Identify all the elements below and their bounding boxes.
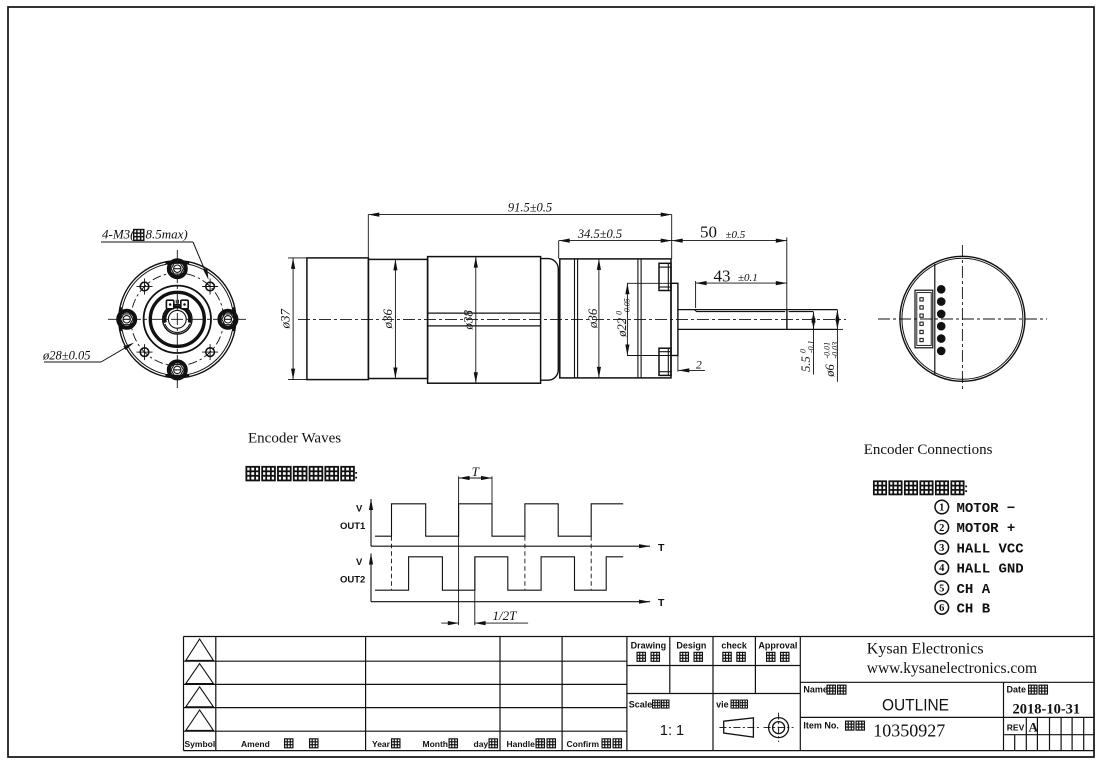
svg-text:ø6: ø6 <box>823 364 837 378</box>
svg-text:HALL GND: HALL GND <box>957 562 1024 578</box>
svg-text::: : <box>354 467 358 482</box>
svg-text:T: T <box>472 464 480 479</box>
svg-text:34.5±0.5: 34.5±0.5 <box>577 227 622 241</box>
svg-text:2: 2 <box>939 523 944 534</box>
svg-text:6: 6 <box>940 349 943 355</box>
svg-text:A: A <box>1029 720 1039 735</box>
svg-text:Month: Month <box>423 739 449 749</box>
svg-text:Date: Date <box>1007 685 1027 695</box>
svg-text:ø36: ø36 <box>585 308 600 329</box>
svg-text:10350927: 10350927 <box>873 721 945 741</box>
svg-text:Encoder Waves: Encoder Waves <box>248 431 341 447</box>
svg-text:T: T <box>658 597 665 609</box>
svg-text:HALL VCC: HALL VCC <box>957 541 1025 557</box>
svg-text:OUTLINE: OUTLINE <box>882 696 949 715</box>
svg-text:-0.05: -0.05 <box>623 298 632 315</box>
svg-text:Symbol: Symbol <box>185 739 216 749</box>
svg-text:1: 1: 1: 1 <box>660 723 684 739</box>
svg-text:Approval: Approval <box>758 641 797 651</box>
svg-text:2018-10-31: 2018-10-31 <box>1013 702 1081 718</box>
svg-text:REV: REV <box>1007 723 1025 733</box>
svg-text:5: 5 <box>939 583 944 594</box>
svg-text:vie: vie <box>716 700 729 710</box>
svg-text:Kysan Electronics: Kysan Electronics <box>867 641 984 658</box>
svg-text:Handle: Handle <box>507 739 536 749</box>
svg-text:MOTOR −: MOTOR − <box>957 501 1016 517</box>
svg-text:ø22: ø22 <box>615 318 629 338</box>
svg-text:day: day <box>474 739 489 749</box>
svg-text:OUT2: OUT2 <box>340 575 365 586</box>
svg-text:Amend: Amend <box>241 739 270 749</box>
svg-text:3: 3 <box>940 312 943 318</box>
svg-text:91.5±0.5: 91.5±0.5 <box>508 201 552 215</box>
svg-text:6: 6 <box>939 603 944 614</box>
svg-text:Name: Name <box>803 685 828 695</box>
svg-text:T: T <box>658 542 665 554</box>
svg-text:CH A: CH A <box>957 582 991 598</box>
svg-text:V: V <box>356 557 363 568</box>
svg-text:43: 43 <box>714 267 731 286</box>
svg-text:Encoder Connections: Encoder Connections <box>864 442 993 458</box>
svg-text:±0.5: ±0.5 <box>726 229 746 241</box>
svg-text:Scale: Scale <box>629 700 653 710</box>
svg-text:2: 2 <box>696 360 702 372</box>
svg-text:Drawing: Drawing <box>631 641 667 651</box>
svg-text:Year: Year <box>372 739 391 749</box>
svg-text:ø28±0.05: ø28±0.05 <box>42 349 91 363</box>
svg-text:MOTOR +: MOTOR + <box>957 521 1016 537</box>
svg-text:check: check <box>721 641 748 651</box>
svg-text:ø36: ø36 <box>380 309 395 330</box>
svg-text:Confirm: Confirm <box>567 739 600 749</box>
svg-text:4-M3(: 4-M3( <box>102 227 135 242</box>
svg-text:8.5max): 8.5max) <box>146 227 188 242</box>
svg-text:Design: Design <box>676 641 706 651</box>
svg-text:4: 4 <box>939 563 945 574</box>
svg-text:ø38: ø38 <box>461 310 476 331</box>
svg-text:1: 1 <box>939 503 944 514</box>
svg-text:1/2T: 1/2T <box>493 608 518 623</box>
svg-text:V: V <box>356 504 363 515</box>
svg-text:±0.1: ±0.1 <box>738 272 758 284</box>
svg-text:1: 1 <box>940 287 943 293</box>
svg-text:-0.03: -0.03 <box>831 342 840 359</box>
svg-text:-0.1: -0.1 <box>807 340 816 353</box>
svg-text:www.kysanelectronics.com: www.kysanelectronics.com <box>867 660 1037 677</box>
svg-text:Item No.: Item No. <box>803 721 839 731</box>
svg-text:5: 5 <box>940 337 943 343</box>
svg-text:CH B: CH B <box>957 601 991 617</box>
svg-text:ø37: ø37 <box>278 309 293 330</box>
svg-text:50: 50 <box>700 223 717 242</box>
svg-text:2: 2 <box>940 300 943 306</box>
svg-text::: : <box>964 480 968 495</box>
svg-text:3: 3 <box>939 543 944 554</box>
svg-text:5.5: 5.5 <box>799 356 813 372</box>
svg-text:OUT1: OUT1 <box>340 521 366 532</box>
